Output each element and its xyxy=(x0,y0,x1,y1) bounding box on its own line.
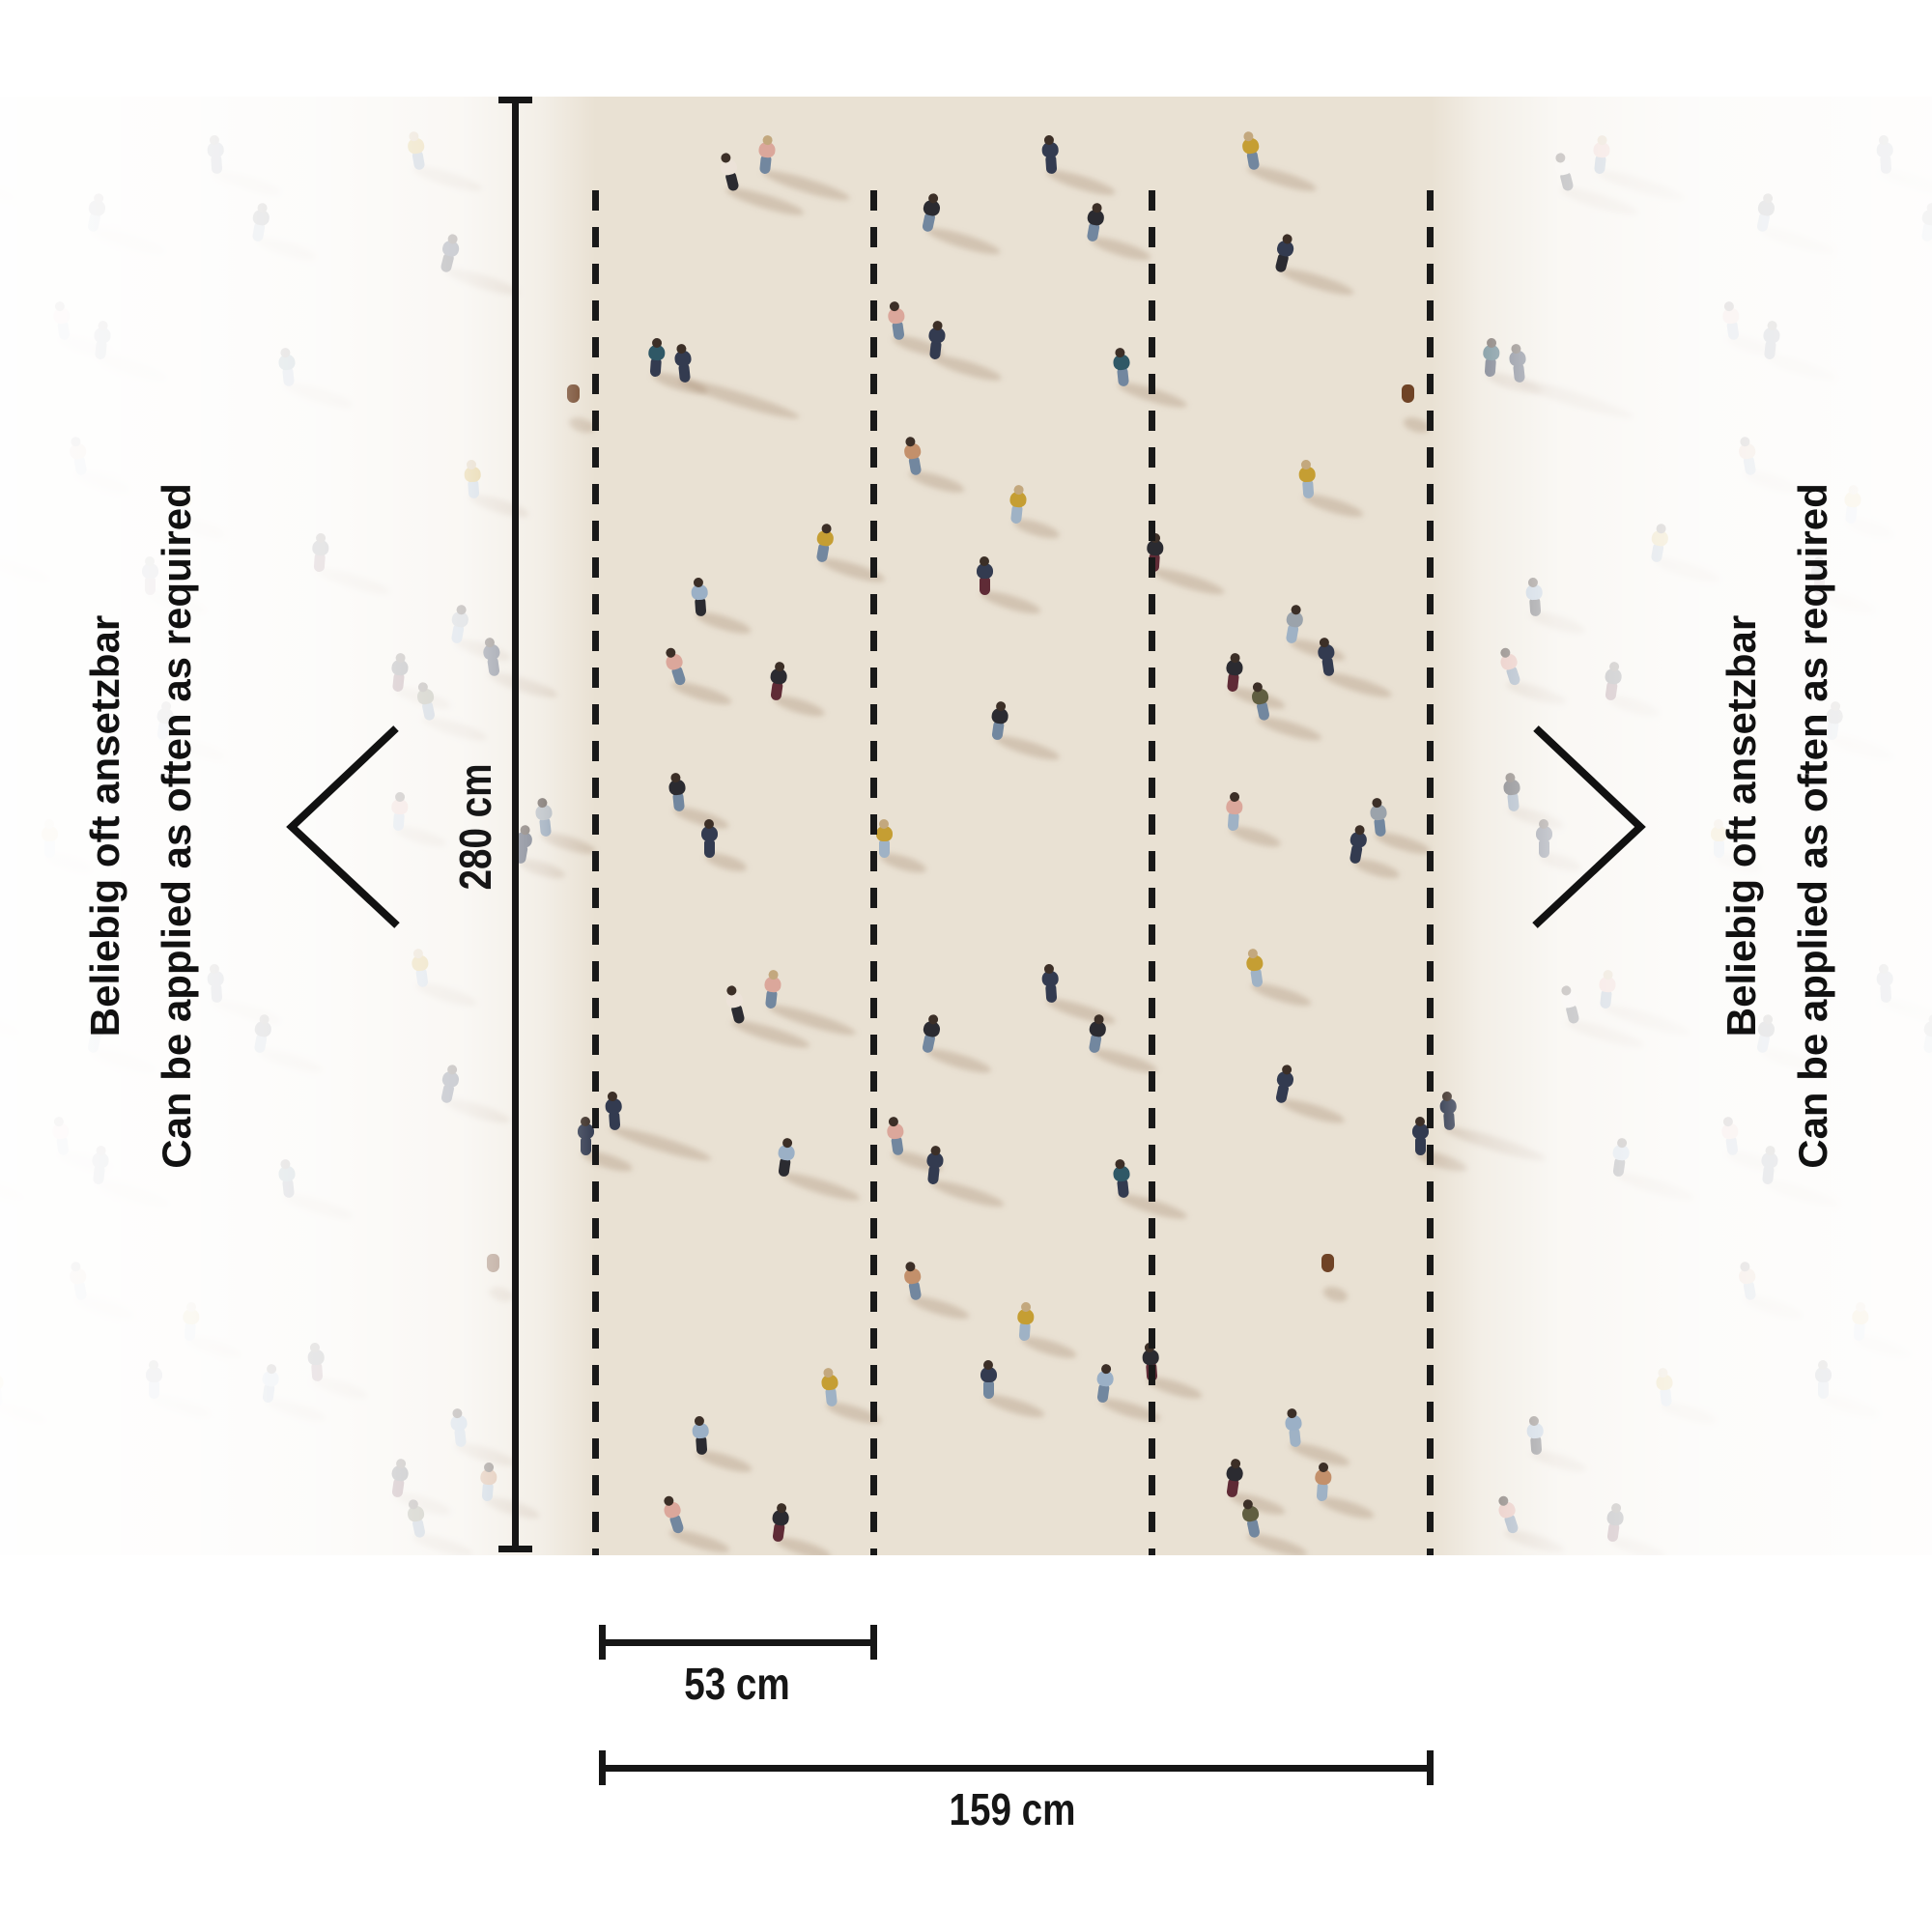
person-figure xyxy=(206,135,225,182)
person-body xyxy=(1039,134,1062,174)
person-body xyxy=(917,1012,944,1054)
person-body xyxy=(49,300,73,341)
person-body xyxy=(986,700,1010,741)
person-legs xyxy=(539,817,552,837)
person-figure xyxy=(1438,1092,1458,1138)
person-figure xyxy=(768,662,787,708)
person-figure xyxy=(1274,1065,1293,1111)
person-body xyxy=(689,577,711,616)
person-legs xyxy=(311,1363,323,1382)
person-figure xyxy=(277,1159,297,1206)
person-figure xyxy=(1605,1503,1624,1549)
strip-divider-dashed-line xyxy=(592,190,599,1555)
person-legs xyxy=(1117,1179,1129,1198)
person-figure xyxy=(1085,203,1104,249)
person-body xyxy=(408,948,432,988)
total-width-dimension-text: 159 cm xyxy=(949,1783,1075,1835)
figure-shadow xyxy=(1321,1284,1350,1304)
person-legs xyxy=(313,554,325,573)
person-body xyxy=(721,983,749,1026)
dog-body-shape xyxy=(1321,1254,1334,1272)
person-figure xyxy=(1313,1463,1332,1509)
person-figure xyxy=(1274,234,1293,280)
repeat-caption-left: Beliebig oft ansetzbar Can be applied as… xyxy=(70,483,213,1169)
person-legs xyxy=(1415,1137,1426,1155)
person-head xyxy=(1539,819,1548,829)
person-body xyxy=(1506,343,1529,384)
person-body xyxy=(884,300,908,341)
person-body xyxy=(1238,130,1264,172)
person-legs xyxy=(825,1387,838,1406)
person-figure xyxy=(886,1117,905,1163)
person-figure xyxy=(1524,578,1544,624)
person-body xyxy=(1534,819,1553,858)
person-figure xyxy=(69,1262,88,1308)
person-body xyxy=(1874,963,1896,1003)
person-figure xyxy=(691,1416,710,1463)
person-body xyxy=(412,680,440,722)
person-body xyxy=(1006,484,1029,525)
person-figure xyxy=(874,819,894,866)
pattern-tile xyxy=(596,97,1431,1555)
person-body xyxy=(1281,604,1307,645)
person-body xyxy=(1237,1497,1264,1539)
person-body xyxy=(1312,1462,1334,1501)
person-body xyxy=(690,1415,712,1455)
person-figure xyxy=(820,1368,839,1414)
person-figure xyxy=(181,1302,200,1349)
person-body xyxy=(1492,1493,1522,1536)
height-dimension-text: 280 cm xyxy=(449,763,501,890)
person-body xyxy=(1849,1301,1871,1341)
person-figure xyxy=(1850,1302,1869,1349)
person-body xyxy=(1084,1013,1110,1055)
person-body xyxy=(1589,134,1612,175)
person-figure xyxy=(1554,153,1574,199)
person-figure xyxy=(86,193,105,240)
person-figure xyxy=(1317,638,1336,684)
person-body xyxy=(1917,202,1932,243)
person-figure xyxy=(1875,964,1894,1010)
person-legs xyxy=(1880,156,1891,175)
person-figure xyxy=(1649,524,1668,570)
person-body xyxy=(975,556,994,595)
repeat-caption-left-german: Beliebig oft ansetzbar xyxy=(70,483,141,1169)
person-figure xyxy=(1245,949,1264,995)
person-legs xyxy=(758,155,771,174)
person-legs xyxy=(1507,792,1520,811)
person-figure xyxy=(1094,1364,1114,1410)
person-body xyxy=(1092,1363,1116,1404)
person-legs xyxy=(1853,1322,1864,1342)
person-figure xyxy=(979,1360,998,1406)
person-legs xyxy=(672,792,685,811)
strip-divider-dashed-line xyxy=(870,190,877,1555)
person-legs xyxy=(94,340,106,359)
person-figure xyxy=(1087,1014,1106,1061)
person-legs xyxy=(282,367,295,386)
person-figure xyxy=(1761,321,1780,367)
person-figure xyxy=(389,653,409,699)
person-body xyxy=(82,191,109,233)
person-body xyxy=(447,1407,470,1448)
person-body xyxy=(979,1360,998,1399)
person-legs xyxy=(928,340,941,359)
person-legs xyxy=(44,839,55,858)
dog-body xyxy=(483,1254,502,1272)
person-figure xyxy=(306,1343,326,1389)
person-body xyxy=(66,1261,92,1302)
figure-shadow xyxy=(0,554,52,586)
person-legs xyxy=(1593,155,1605,174)
person-legs xyxy=(764,989,777,1009)
person-figure xyxy=(1241,131,1261,178)
person-figure xyxy=(1919,203,1932,249)
person-figure xyxy=(449,1408,469,1455)
person-body xyxy=(90,320,113,360)
person-body xyxy=(645,337,668,377)
person-legs xyxy=(1763,340,1776,359)
person-legs xyxy=(149,1380,159,1399)
person-legs xyxy=(1018,1322,1030,1342)
person-body xyxy=(1296,459,1319,498)
person-figure xyxy=(756,135,776,182)
person-body xyxy=(0,523,2,564)
person-body xyxy=(144,1360,163,1399)
person-figure xyxy=(989,701,1009,748)
person-legs xyxy=(481,1483,493,1502)
height-measure-line xyxy=(512,99,519,1552)
dog-body-shape xyxy=(567,384,580,403)
person-body xyxy=(658,1493,688,1536)
person-body xyxy=(1014,1301,1037,1341)
strip-width-right-cap xyxy=(870,1625,877,1660)
person-figure xyxy=(604,1092,623,1138)
person-legs xyxy=(609,1112,620,1131)
person-legs xyxy=(454,1428,467,1447)
person-body xyxy=(436,1063,463,1104)
dog-figure xyxy=(1398,384,1417,431)
height-measure-bottom-cap xyxy=(498,1546,532,1552)
person-body xyxy=(275,1158,298,1199)
person-body xyxy=(900,436,926,477)
person-legs xyxy=(1443,1112,1455,1131)
person-figure xyxy=(1112,1159,1131,1206)
person-body xyxy=(1646,523,1672,564)
person-body xyxy=(1735,1261,1761,1302)
person-legs xyxy=(468,480,479,499)
strip-width-left-cap xyxy=(599,1625,606,1660)
person-figure xyxy=(1597,970,1616,1016)
total-width-left-cap xyxy=(599,1750,606,1785)
person-figure xyxy=(407,131,426,178)
person-body xyxy=(257,1363,281,1404)
strip-divider-dashed-line xyxy=(1149,190,1155,1555)
person-figure xyxy=(1241,1499,1261,1546)
person-body xyxy=(180,1301,202,1341)
person-body xyxy=(1221,1458,1245,1498)
person-legs xyxy=(1316,1483,1327,1502)
person-figure xyxy=(1603,662,1622,708)
person-figure xyxy=(1875,135,1894,182)
person-legs xyxy=(392,812,404,832)
person-legs xyxy=(1374,817,1386,837)
person-body xyxy=(818,1367,841,1407)
person-legs xyxy=(391,672,404,692)
person-body xyxy=(660,645,690,688)
person-legs xyxy=(1530,1436,1542,1456)
person-figure xyxy=(440,1065,459,1111)
person-body xyxy=(205,134,227,174)
person-body xyxy=(1549,151,1577,193)
dog-body-shape xyxy=(487,1254,499,1272)
person-figure xyxy=(277,348,297,394)
person-figure xyxy=(389,1459,409,1505)
strip-divider-dashed-line xyxy=(1427,190,1434,1555)
person-body xyxy=(767,1502,791,1543)
person-body xyxy=(479,637,503,677)
figure-shadow xyxy=(0,1398,48,1428)
person-body xyxy=(666,772,689,812)
person-body xyxy=(1500,772,1523,812)
person-figure xyxy=(1500,647,1520,694)
person-figure xyxy=(646,338,666,384)
strip-width-dimension-text: 53 cm xyxy=(684,1658,790,1710)
person-body xyxy=(386,1458,411,1498)
person-figure xyxy=(440,234,459,280)
person-figure xyxy=(534,798,554,844)
person-body xyxy=(477,1462,499,1501)
person-figure xyxy=(478,1463,497,1509)
person-figure xyxy=(921,193,940,240)
person-head xyxy=(879,819,889,829)
person-body xyxy=(715,151,743,193)
dog-figure xyxy=(1318,1254,1337,1300)
person-head xyxy=(581,1117,590,1126)
person-body xyxy=(1269,232,1297,274)
person-figure xyxy=(0,1368,5,1414)
person-body xyxy=(1751,191,1778,233)
dog-body xyxy=(1398,384,1417,403)
person-figure xyxy=(1738,1262,1757,1308)
person-body xyxy=(1247,680,1274,722)
person-figure xyxy=(1591,135,1610,182)
person-body xyxy=(671,343,695,384)
person-figure xyxy=(725,985,745,1032)
person-legs xyxy=(879,839,890,858)
person-body xyxy=(1110,347,1133,387)
person-figure xyxy=(720,153,739,199)
person-figure xyxy=(1498,1495,1518,1542)
person-legs xyxy=(1302,480,1314,499)
person-body xyxy=(1270,1063,1297,1104)
person-legs xyxy=(678,363,691,383)
person-figure xyxy=(903,1262,923,1308)
person-torso xyxy=(0,1374,4,1391)
person-body xyxy=(699,819,719,858)
person-body xyxy=(1367,797,1390,838)
person-figure xyxy=(1348,825,1367,871)
person-legs xyxy=(1660,1387,1672,1406)
dog-figure xyxy=(563,384,582,431)
person-body xyxy=(1595,969,1618,1009)
person-legs xyxy=(1289,1428,1301,1447)
person-body xyxy=(1242,948,1266,988)
person-body xyxy=(1437,1091,1460,1130)
person-legs xyxy=(1117,367,1129,386)
person-legs xyxy=(1009,504,1022,524)
figure-shadow xyxy=(0,1168,27,1205)
person-figure xyxy=(92,321,111,367)
person-body xyxy=(532,797,555,838)
person-legs xyxy=(704,839,715,858)
person-figure xyxy=(260,1364,279,1410)
person-figure xyxy=(1284,1408,1303,1455)
person-figure xyxy=(40,819,59,866)
person-body xyxy=(1602,1502,1626,1543)
person-figure xyxy=(1610,1138,1630,1184)
figure-shadow xyxy=(0,1000,23,1039)
height-measure-top-cap xyxy=(498,97,532,103)
person-body xyxy=(1719,300,1743,341)
person-figure xyxy=(449,605,469,651)
person-figure xyxy=(921,1014,940,1061)
person-legs xyxy=(211,156,222,175)
person-body xyxy=(603,1091,625,1130)
person-legs xyxy=(1226,672,1238,692)
person-legs xyxy=(1045,984,1057,1004)
person-legs xyxy=(1599,989,1611,1009)
strip-width-dimension-label: 53 cm xyxy=(674,1658,800,1710)
person-figure xyxy=(1015,1302,1035,1349)
person-body xyxy=(760,969,783,1009)
person-figure xyxy=(1040,964,1060,1010)
person-body xyxy=(773,1137,797,1178)
person-head xyxy=(1415,1117,1425,1126)
person-body xyxy=(40,819,59,858)
person-legs xyxy=(184,1322,195,1342)
person-figure xyxy=(1284,605,1303,651)
dog-body xyxy=(563,384,582,403)
person-figure xyxy=(463,460,482,506)
person-figure xyxy=(975,556,994,603)
repeat-caption-right: Beliebig oft ansetzbar Can be applied as… xyxy=(1706,483,1849,1169)
person-legs xyxy=(282,1179,295,1198)
person-body xyxy=(275,347,298,387)
person-figure xyxy=(1655,1368,1674,1414)
person-figure xyxy=(1502,773,1521,819)
person-figure xyxy=(1008,485,1027,531)
person-figure xyxy=(252,1014,271,1061)
figure-shadow xyxy=(1512,374,1635,423)
person-figure xyxy=(762,970,781,1016)
person-body xyxy=(247,202,273,243)
repeat-caption-right-german: Beliebig oft ansetzbar xyxy=(1706,483,1777,1169)
person-legs xyxy=(1539,839,1549,858)
person-figure xyxy=(1224,653,1243,699)
person-legs xyxy=(980,577,990,595)
person-figure xyxy=(144,1360,163,1406)
person-legs xyxy=(1818,1380,1829,1399)
person-body xyxy=(1480,337,1502,377)
person-body xyxy=(811,523,838,564)
person-figure xyxy=(699,819,719,866)
dog-body xyxy=(1318,1254,1337,1272)
person-legs xyxy=(1880,984,1891,1004)
person-body xyxy=(387,652,411,693)
person-figure xyxy=(51,1117,71,1163)
person-body xyxy=(900,1261,926,1302)
person-body xyxy=(435,232,463,274)
height-dimension-label: 280 cm xyxy=(449,752,501,902)
person-body xyxy=(66,436,92,477)
repeat-caption-right-english: Can be applied as often as required xyxy=(1777,483,1849,1169)
person-body xyxy=(1607,1137,1632,1178)
person-figure xyxy=(673,344,693,390)
person-legs xyxy=(1045,156,1057,175)
person-body xyxy=(388,791,411,831)
pattern-band xyxy=(0,97,1932,1555)
person-figure xyxy=(924,1146,944,1192)
person-legs xyxy=(1227,812,1238,832)
person-body xyxy=(874,819,894,858)
person-body xyxy=(1926,1363,1932,1404)
person-legs xyxy=(0,1387,3,1406)
person-figure xyxy=(1112,348,1131,394)
person-body xyxy=(1874,134,1896,174)
person-head xyxy=(149,1360,158,1370)
person-legs xyxy=(696,1436,707,1456)
total-width-right-cap xyxy=(1427,1750,1434,1785)
person-body xyxy=(1222,652,1245,693)
person-legs xyxy=(926,1165,939,1184)
figure-shadow xyxy=(677,374,801,423)
person-body xyxy=(1039,963,1062,1003)
person-figure xyxy=(1813,1360,1833,1406)
person-body xyxy=(1523,577,1546,616)
person-figure xyxy=(1525,1416,1545,1463)
figure-shadow xyxy=(487,1284,515,1304)
person-body xyxy=(403,1497,430,1539)
person-figure xyxy=(903,437,923,483)
person-body xyxy=(462,459,484,498)
person-figure xyxy=(250,203,270,249)
person-legs xyxy=(581,1137,591,1155)
wallpaper-dimension-diagram: 280 cm 53 cm 159 cm Beliebig oft ansetzb… xyxy=(0,0,1932,1932)
person-head xyxy=(44,819,54,829)
person-legs xyxy=(695,598,706,617)
person-figure xyxy=(389,792,409,838)
dog-figure xyxy=(483,1254,502,1300)
person-figure xyxy=(1738,437,1757,483)
person-body xyxy=(1653,1367,1676,1407)
repeat-caption-left-english: Can be applied as often as required xyxy=(141,483,213,1169)
person-figure xyxy=(411,949,430,995)
person-head xyxy=(980,556,989,566)
person-figure xyxy=(1721,301,1741,348)
person-body xyxy=(1110,1158,1133,1199)
person-body xyxy=(923,1145,946,1185)
person-figure xyxy=(1921,1014,1932,1061)
pattern-tile xyxy=(1431,97,1932,1555)
person-figure xyxy=(69,437,88,483)
person-legs xyxy=(1513,363,1525,383)
person-figure xyxy=(407,1499,426,1546)
person-body xyxy=(1813,1360,1833,1399)
person-figure xyxy=(1755,193,1775,240)
person-body xyxy=(404,130,430,172)
person-figure xyxy=(1040,135,1060,182)
